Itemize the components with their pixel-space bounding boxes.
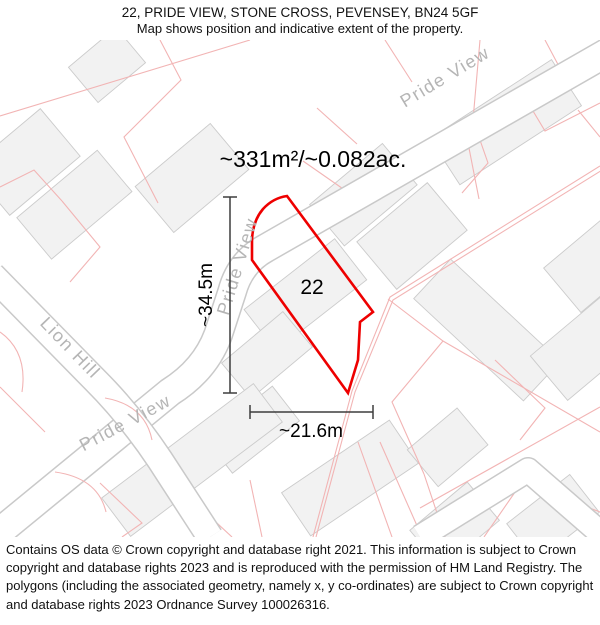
building [544,212,600,313]
building [414,259,561,401]
plot-number-label: 22 [300,276,323,299]
parcel-line [578,110,600,137]
building [68,40,145,103]
width-measure-label: ~21.6m [279,421,343,442]
footer-attribution: Contains OS data © Crown copyright and d… [6,542,593,612]
height-measure-label: ~34.5m [196,263,217,327]
building [530,295,600,400]
page-subtitle: Map shows position and indicative extent… [0,21,600,37]
street-label-pride-view-top: Pride View [397,42,494,111]
footer: Contains OS data © Crown copyright and d… [0,537,600,614]
building [135,124,249,233]
map-container: Pride View Pride View Pride View Lion Hi… [0,40,600,537]
parcel-line [385,40,412,82]
parcel-line [0,332,23,392]
building [407,408,488,487]
header: 22, PRIDE VIEW, STONE CROSS, PEVENSEY, B… [0,0,600,37]
parcel-line [0,387,45,432]
parcel-line [317,108,357,144]
parcel-line [250,480,262,537]
area-label: ~331m²/~0.082ac. [220,146,407,172]
property-map: Pride View Pride View Pride View Lion Hi… [0,40,600,537]
page-title: 22, PRIDE VIEW, STONE CROSS, PEVENSEY, B… [0,5,600,21]
